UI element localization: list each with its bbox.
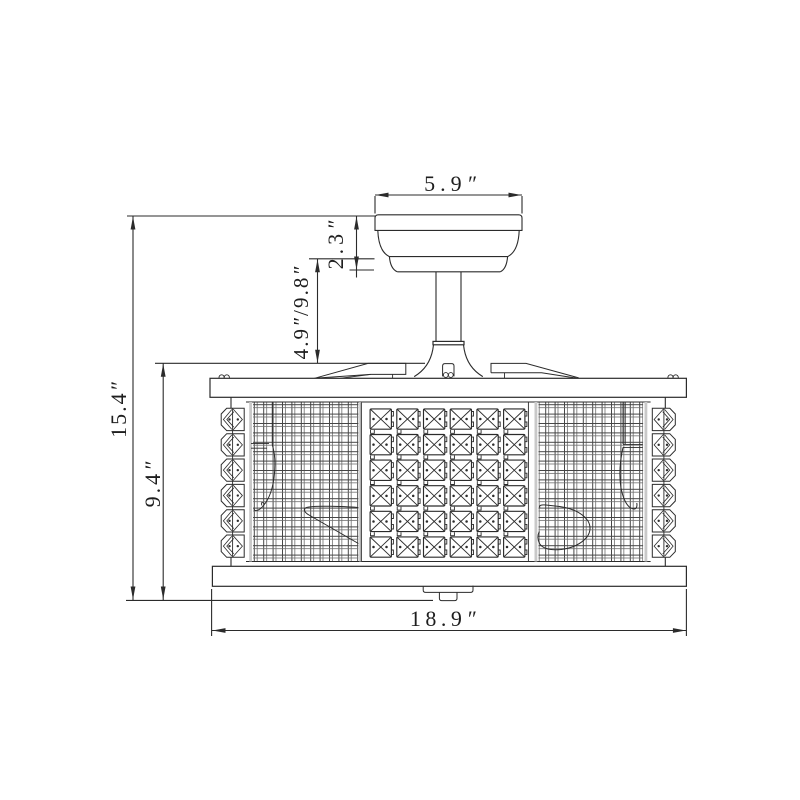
svg-text:9.4″: 9.4″ [140,459,165,508]
svg-text:2.3″: 2.3″ [323,217,348,270]
svg-text:15.4″: 15.4″ [106,380,131,438]
svg-text:18.9″: 18.9″ [410,606,480,631]
svg-text:4.9″/9.8″: 4.9″/9.8″ [289,265,313,360]
svg-text:5.9″: 5.9″ [424,171,481,196]
